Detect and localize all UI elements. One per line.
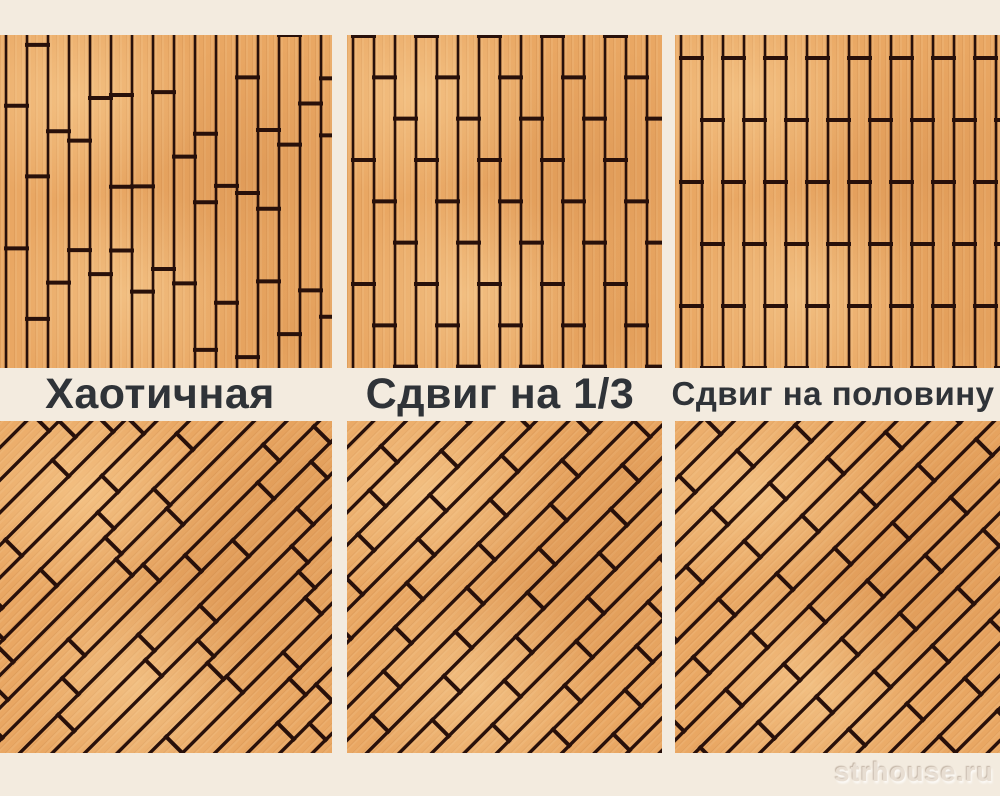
parquet-pattern-graphic — [675, 421, 1000, 753]
parquet-pattern-graphic — [347, 421, 662, 753]
pattern-label-chaotic: Хаотичная — [45, 368, 275, 421]
label-band: Хаотичная Сдвиг на 1/3 Сдвиг на половину — [0, 368, 1000, 421]
panel-diagonal-chaotic — [0, 421, 332, 753]
pattern-label-shift-third: Сдвиг на 1/3 — [366, 368, 635, 421]
panel-diagonal-shift-half — [675, 421, 1000, 753]
panel-vertical-chaotic — [0, 35, 332, 368]
parquet-pattern-graphic — [0, 421, 332, 753]
panel-vertical-shift-half — [675, 35, 1000, 368]
parquet-pattern-graphic — [347, 35, 662, 368]
pattern-label-shift-half: Сдвиг на половину — [671, 368, 994, 421]
panel-diagonal-shift-third — [347, 421, 662, 753]
parquet-patterns-poster: Хаотичная Сдвиг на 1/3 Сдвиг на половину… — [0, 0, 1000, 796]
parquet-pattern-graphic — [675, 35, 1000, 368]
site-watermark: strhouse.ru — [834, 757, 994, 788]
panel-vertical-shift-third — [347, 35, 662, 368]
parquet-pattern-graphic — [0, 35, 332, 368]
